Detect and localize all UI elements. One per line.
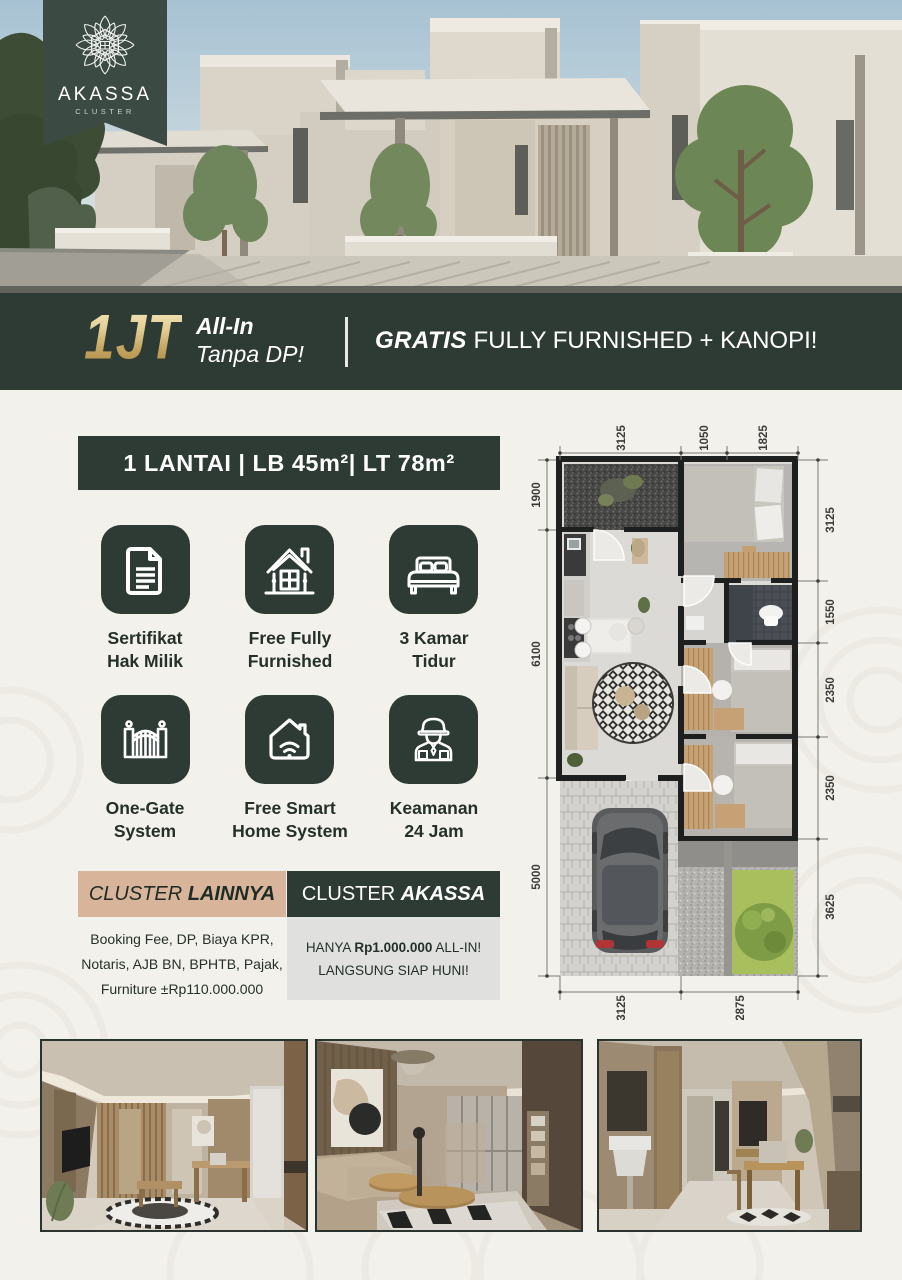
svg-text:6100: 6100	[531, 641, 543, 667]
svg-text:1050: 1050	[699, 425, 711, 451]
svg-text:2875: 2875	[735, 995, 747, 1020]
svg-text:5000: 5000	[531, 864, 543, 890]
svg-text:1550: 1550	[825, 599, 837, 625]
svg-text:2350: 2350	[825, 775, 837, 801]
svg-text:3125: 3125	[825, 507, 837, 533]
svg-text:3625: 3625	[825, 894, 837, 920]
svg-text:1825: 1825	[758, 425, 770, 451]
svg-text:3125: 3125	[616, 995, 628, 1020]
svg-text:1900: 1900	[531, 482, 543, 508]
svg-text:2350: 2350	[825, 677, 837, 703]
svg-text:3125: 3125	[616, 425, 628, 451]
